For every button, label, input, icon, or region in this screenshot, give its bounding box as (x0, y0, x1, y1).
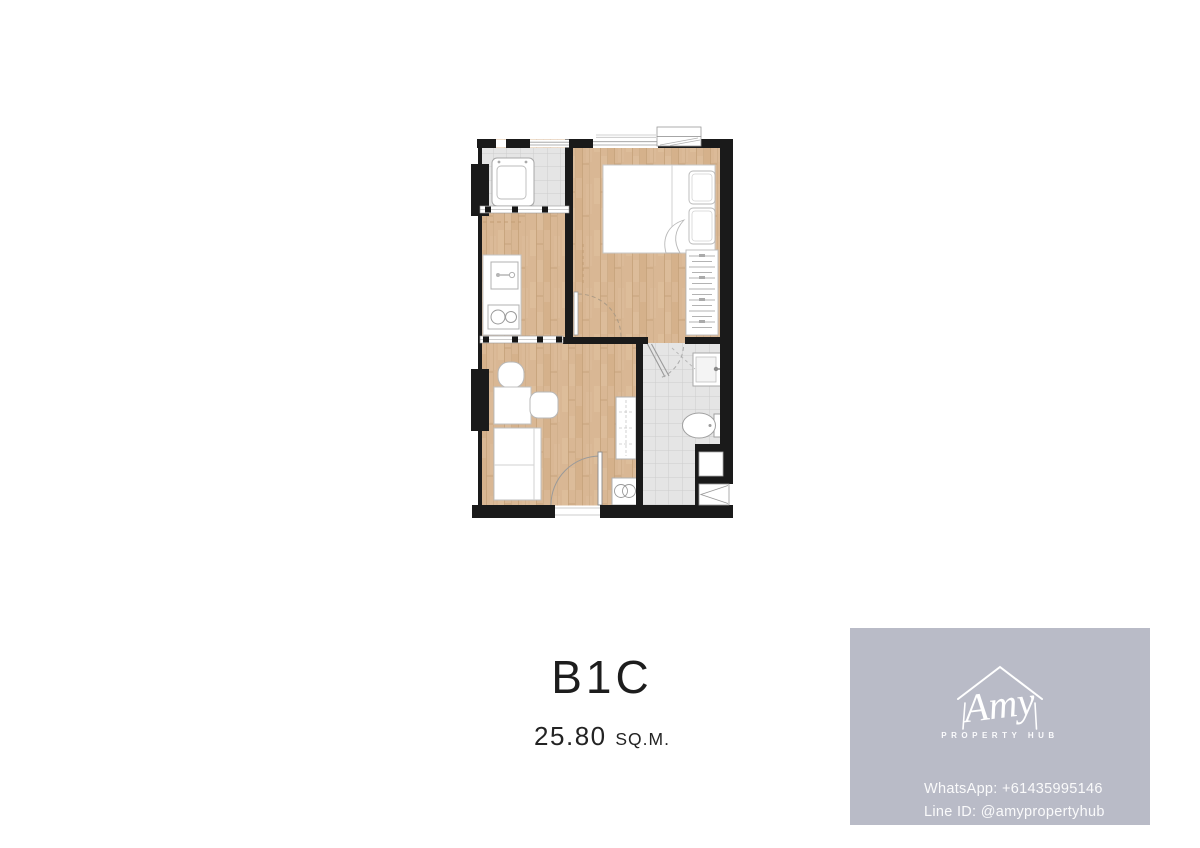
floorplan-image (466, 126, 738, 518)
toilet-icon (683, 413, 726, 438)
area-unit: SQ.M. (615, 729, 670, 749)
kitchen-sliding-partition (480, 336, 563, 343)
appliance-icon (612, 478, 637, 505)
kitchen-sink-icon (491, 262, 518, 289)
washing-machine-icon (492, 158, 534, 206)
shaft-icon (699, 484, 729, 505)
contact-line-id: Line ID: @amypropertyhub (924, 801, 1105, 824)
sofa-icon (494, 428, 541, 500)
chair-icon (530, 392, 558, 418)
chair-icon (498, 362, 524, 388)
logo-script-text: Amy (958, 678, 1037, 732)
bathroom-sink-icon (693, 353, 722, 386)
stove-icon (488, 305, 519, 329)
balcony-sliding-door (480, 206, 569, 213)
contact-whatsapp: WhatsApp: +61435995146 (924, 778, 1105, 801)
air-conditioner-icon (657, 127, 701, 146)
contact-block: WhatsApp: +61435995146 Line ID: @amyprop… (924, 778, 1105, 824)
desk-icon (494, 387, 531, 424)
wardrobe-icon (686, 250, 718, 335)
entry-threshold (555, 506, 600, 518)
unit-name: B1C (436, 650, 768, 704)
service-niche (699, 452, 723, 476)
cabinet-icon (616, 397, 636, 459)
unit-area: 25.80 SQ.M. (436, 721, 768, 752)
house-logo-icon: Amy (920, 662, 1080, 732)
flyer-page: B1C 25.80 SQ.M. Amy PROPERTY HUB WhatsAp… (0, 0, 1200, 848)
area-value: 25.80 (534, 721, 607, 751)
unit-title-block: B1C 25.80 SQ.M. (436, 650, 768, 752)
brand-watermark-box: Amy PROPERTY HUB WhatsApp: +61435995146 … (850, 628, 1150, 825)
logo-subtitle: PROPERTY HUB (850, 731, 1150, 740)
